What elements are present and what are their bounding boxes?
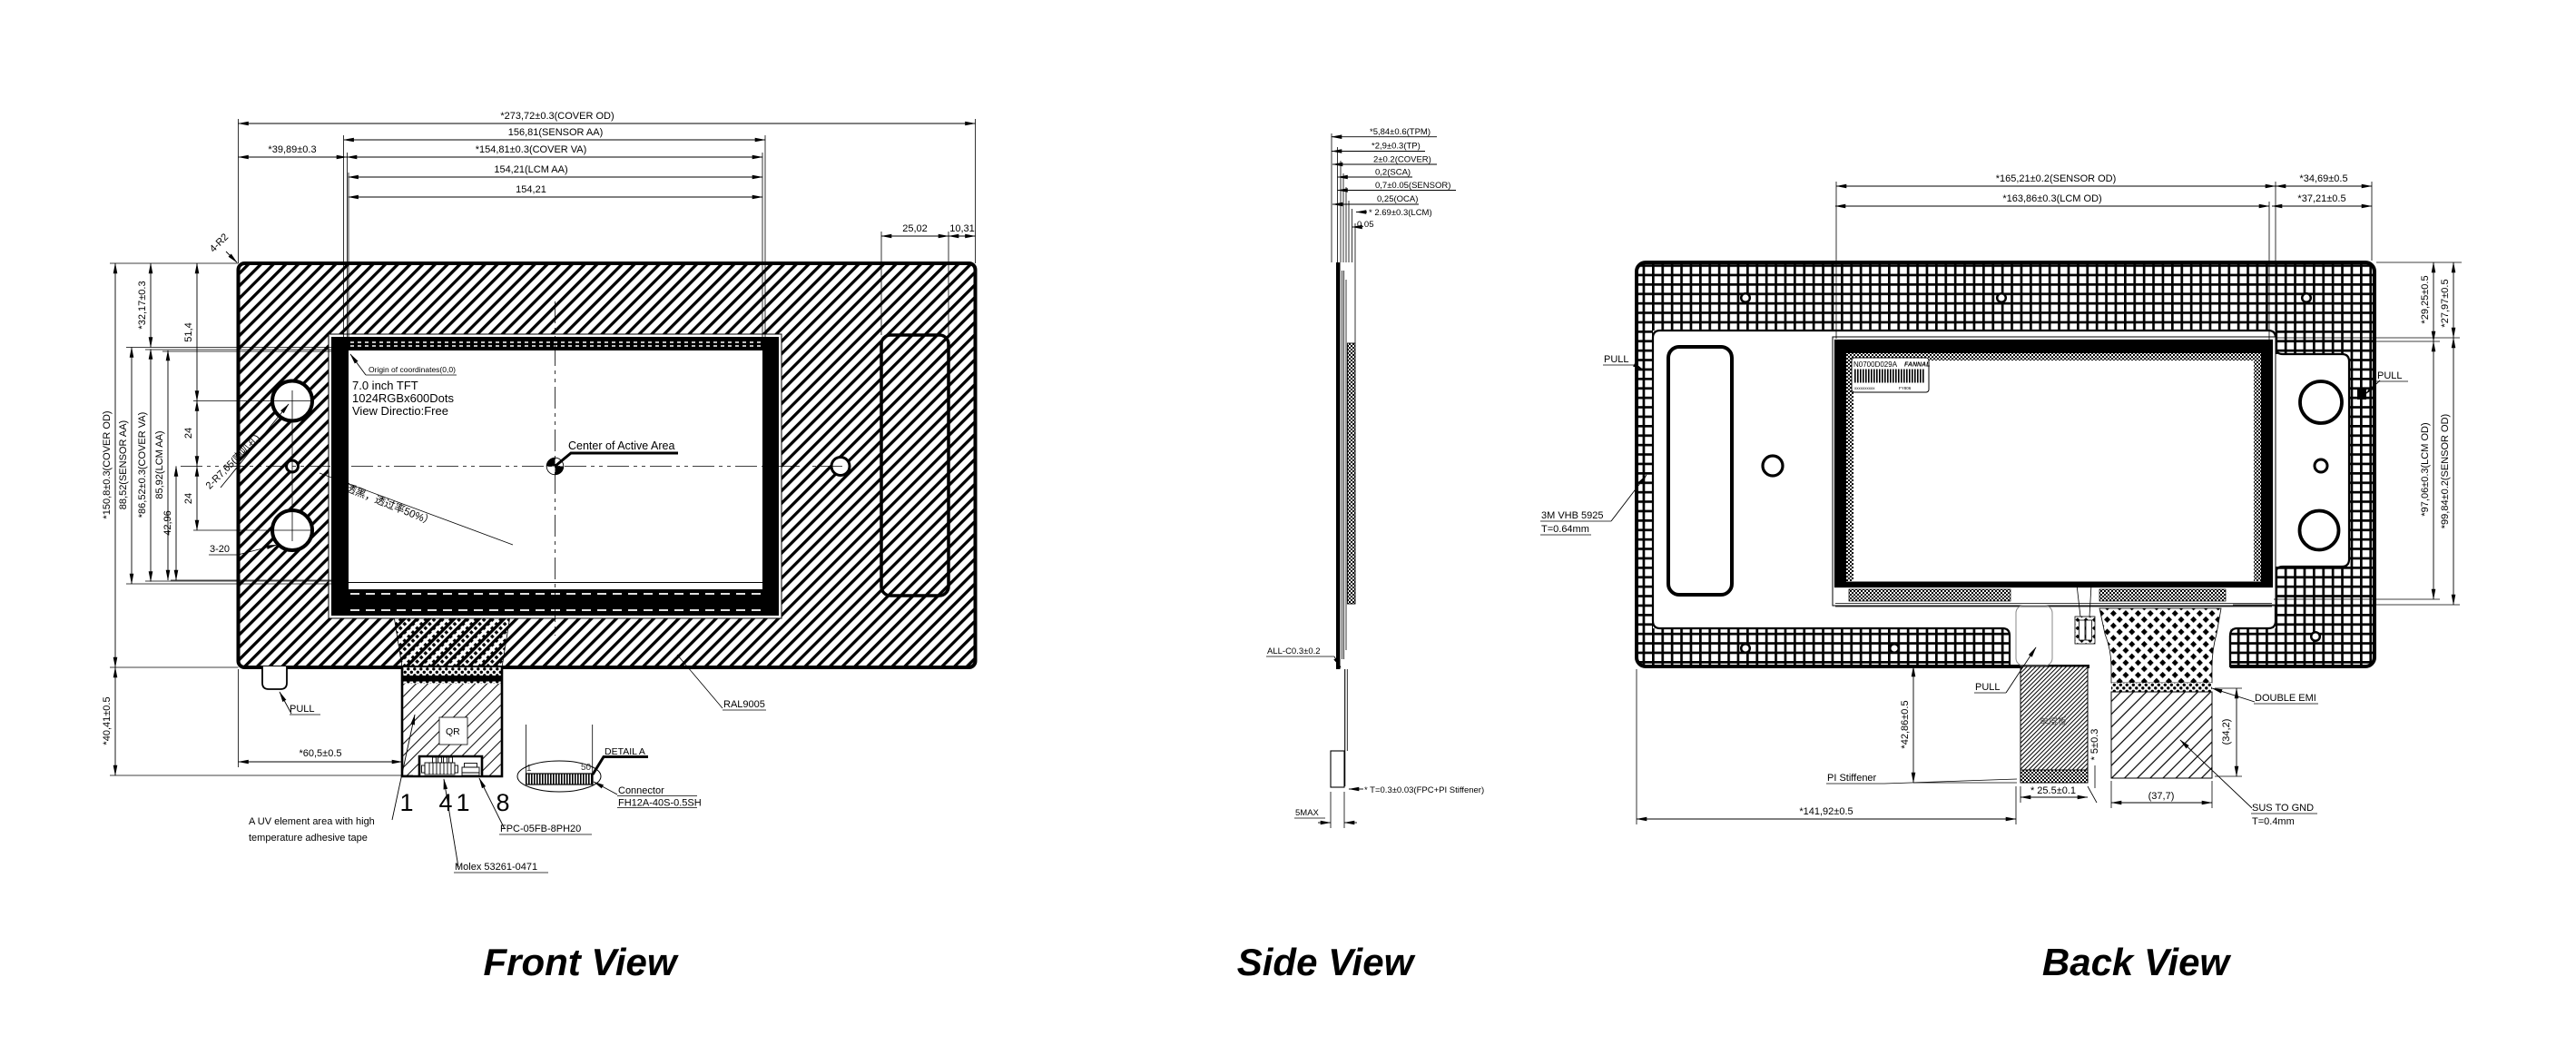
svg-text:*5,84±0.6(TPM): *5,84±0.6(TPM) xyxy=(1370,127,1431,137)
svg-text:154,21: 154,21 xyxy=(516,184,546,195)
svg-text:FPC-05FB-8PH20: FPC-05FB-8PH20 xyxy=(500,824,581,834)
svg-text:1: 1 xyxy=(456,789,469,816)
svg-text:PULL: PULL xyxy=(290,704,315,715)
svg-text:Front View: Front View xyxy=(483,941,678,983)
svg-text:0,2(SCA): 0,2(SCA) xyxy=(1375,168,1411,178)
svg-text:Center of Active Area: Center of Active Area xyxy=(568,439,674,452)
svg-text:10,31: 10,31 xyxy=(949,223,975,234)
svg-text:(37,7): (37,7) xyxy=(2148,791,2175,802)
svg-text:*273,72±0.3(COVER OD): *273,72±0.3(COVER OD) xyxy=(500,111,614,122)
svg-text:4: 4 xyxy=(438,789,452,816)
svg-text:* 2.69±0.3(LCM): * 2.69±0.3(LCM) xyxy=(1369,208,1432,218)
svg-text:SUS TO GND: SUS TO GND xyxy=(2252,803,2314,814)
svg-text:* 5±0.3: * 5±0.3 xyxy=(2089,729,2100,761)
svg-text:156,81(SENSOR AA): 156,81(SENSOR AA) xyxy=(508,127,604,138)
svg-text:*97,06±0.3(LCM OD): *97,06±0.3(LCM OD) xyxy=(2420,422,2431,516)
svg-text:T=0.64mm: T=0.64mm xyxy=(1541,524,1589,535)
svg-text:*40,41±0.5: *40,41±0.5 xyxy=(102,696,113,745)
svg-text:42,96: 42,96 xyxy=(162,510,173,536)
svg-text:*86,52±0.3(COVER VA): *86,52±0.3(COVER VA) xyxy=(137,412,148,518)
svg-text:FH12A-40S-0.5SH: FH12A-40S-0.5SH xyxy=(618,798,702,809)
svg-text:*32,17±0.3: *32,17±0.3 xyxy=(137,281,148,329)
svg-text:24: 24 xyxy=(183,493,194,504)
svg-text:*141,92±0.5: *141,92±0.5 xyxy=(1799,806,1853,817)
svg-text:PULL: PULL xyxy=(2377,370,2403,381)
svg-text:1: 1 xyxy=(526,764,532,774)
svg-text:xxxxxxxxxx: xxxxxxxxxx xyxy=(1854,386,1875,390)
svg-text:View Directio:Free: View Directio:Free xyxy=(352,404,448,418)
svg-text:0,25(OCA): 0,25(OCA) xyxy=(1377,194,1418,204)
svg-text:50: 50 xyxy=(581,763,592,773)
svg-text:temperature adhesive tape: temperature adhesive tape xyxy=(249,833,368,844)
svg-text:N0700D029A: N0700D029A xyxy=(1853,360,1898,369)
svg-text:FY806: FY806 xyxy=(1899,386,1912,390)
svg-text:1024RGBx600Dots: 1024RGBx600Dots xyxy=(352,391,455,405)
svg-text:*42,86±0.5: *42,86±0.5 xyxy=(1900,700,1911,748)
svg-text:DOUBLE EMI: DOUBLE EMI xyxy=(2255,693,2316,704)
svg-text:Molex 53261-0471: Molex 53261-0471 xyxy=(455,862,537,873)
svg-text:0,7±0.05(SENSOR): 0,7±0.05(SENSOR) xyxy=(1375,181,1450,191)
svg-text:2±0.2(COVER): 2±0.2(COVER) xyxy=(1373,155,1431,165)
svg-text:Side View: Side View xyxy=(1237,941,1416,983)
svg-text:* T=0.3±0.03(FPC+PI Stiffener): * T=0.3±0.03(FPC+PI Stiffener) xyxy=(1364,785,1484,795)
svg-text:85,92(LCM AA): 85,92(LCM AA) xyxy=(154,430,165,498)
svg-text:154,21(LCM AA): 154,21(LCM AA) xyxy=(494,164,567,175)
svg-text:Connector: Connector xyxy=(618,785,664,796)
svg-text:FANNAL: FANNAL xyxy=(1904,362,1930,369)
svg-text:ALL-C0.3±0.2: ALL-C0.3±0.2 xyxy=(1267,646,1321,656)
svg-text:51,4: 51,4 xyxy=(183,322,194,341)
svg-text:*163,86±0.3(LCM OD): *163,86±0.3(LCM OD) xyxy=(2002,193,2101,204)
svg-text:88,52(SENSOR AA): 88,52(SENSOR AA) xyxy=(118,420,129,509)
svg-text:QR: QR xyxy=(446,726,460,737)
svg-text:3-20: 3-20 xyxy=(210,544,230,555)
svg-text:单层板: 单层板 xyxy=(2040,715,2067,727)
svg-text:*37,21±0.5: *37,21±0.5 xyxy=(2297,193,2345,204)
svg-text:*165,21±0.2(SENSOR OD): *165,21±0.2(SENSOR OD) xyxy=(1996,173,2117,184)
svg-text:*150,8±0.3(COVER OD): *150,8±0.3(COVER OD) xyxy=(102,410,113,518)
svg-text:24: 24 xyxy=(183,428,194,439)
svg-text:A UV element area with high: A UV element area with high xyxy=(249,816,375,827)
svg-text:*154,81±0.3(COVER VA): *154,81±0.3(COVER VA) xyxy=(476,144,587,155)
svg-text:*60,5±0.5: *60,5±0.5 xyxy=(299,748,341,759)
svg-text:3M VHB 5925: 3M VHB 5925 xyxy=(1541,510,1603,521)
svg-text:Back View: Back View xyxy=(2042,941,2232,983)
svg-text:PULL: PULL xyxy=(1975,682,2001,693)
svg-text:*29,25±0.5: *29,25±0.5 xyxy=(2420,275,2431,323)
svg-text:* 25.5±0.1: * 25.5±0.1 xyxy=(2030,785,2076,796)
svg-text:5MAX: 5MAX xyxy=(1295,808,1320,818)
svg-text:25,02: 25,02 xyxy=(902,223,928,234)
svg-text:0.05: 0.05 xyxy=(1357,220,1374,230)
svg-text:PI Stiffener: PI Stiffener xyxy=(1827,773,1877,784)
svg-text:Origin of coordinates(0,0): Origin of coordinates(0,0) xyxy=(369,365,456,374)
svg-text:T=0.4mm: T=0.4mm xyxy=(2252,816,2295,827)
svg-text:*34,69±0.5: *34,69±0.5 xyxy=(2299,173,2347,184)
svg-text:*27,97±0.5: *27,97±0.5 xyxy=(2440,279,2451,327)
svg-text:(34,2): (34,2) xyxy=(2221,719,2232,745)
svg-text:1: 1 xyxy=(399,789,413,816)
svg-text:*99,84±0.2(SENSOR OD): *99,84±0.2(SENSOR OD) xyxy=(2440,414,2451,528)
svg-text:*39,89±0.3: *39,89±0.3 xyxy=(268,144,316,155)
svg-text:8: 8 xyxy=(496,789,509,816)
svg-text:RAL9005: RAL9005 xyxy=(723,699,765,710)
svg-text:*2,9±0.3(TP): *2,9±0.3(TP) xyxy=(1372,142,1421,152)
svg-text:PULL: PULL xyxy=(1604,354,1629,365)
svg-text:7.0 inch TFT: 7.0 inch TFT xyxy=(352,379,418,392)
